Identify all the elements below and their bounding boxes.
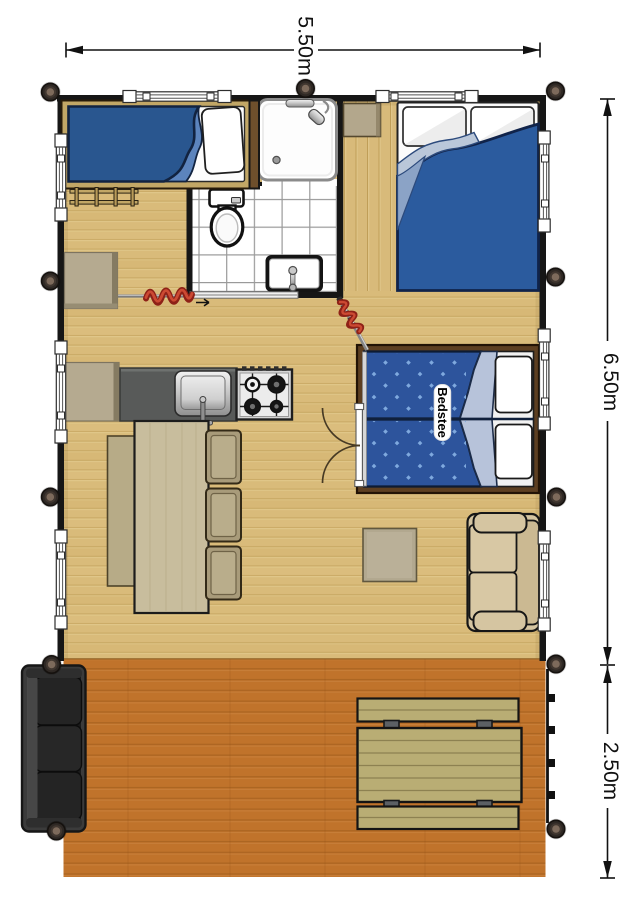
- svg-text:Bedstee: Bedstee: [435, 387, 450, 438]
- svg-text:5.50m: 5.50m: [294, 16, 318, 76]
- svg-text:6.50m: 6.50m: [599, 353, 622, 411]
- svg-text:2.50m: 2.50m: [599, 742, 622, 800]
